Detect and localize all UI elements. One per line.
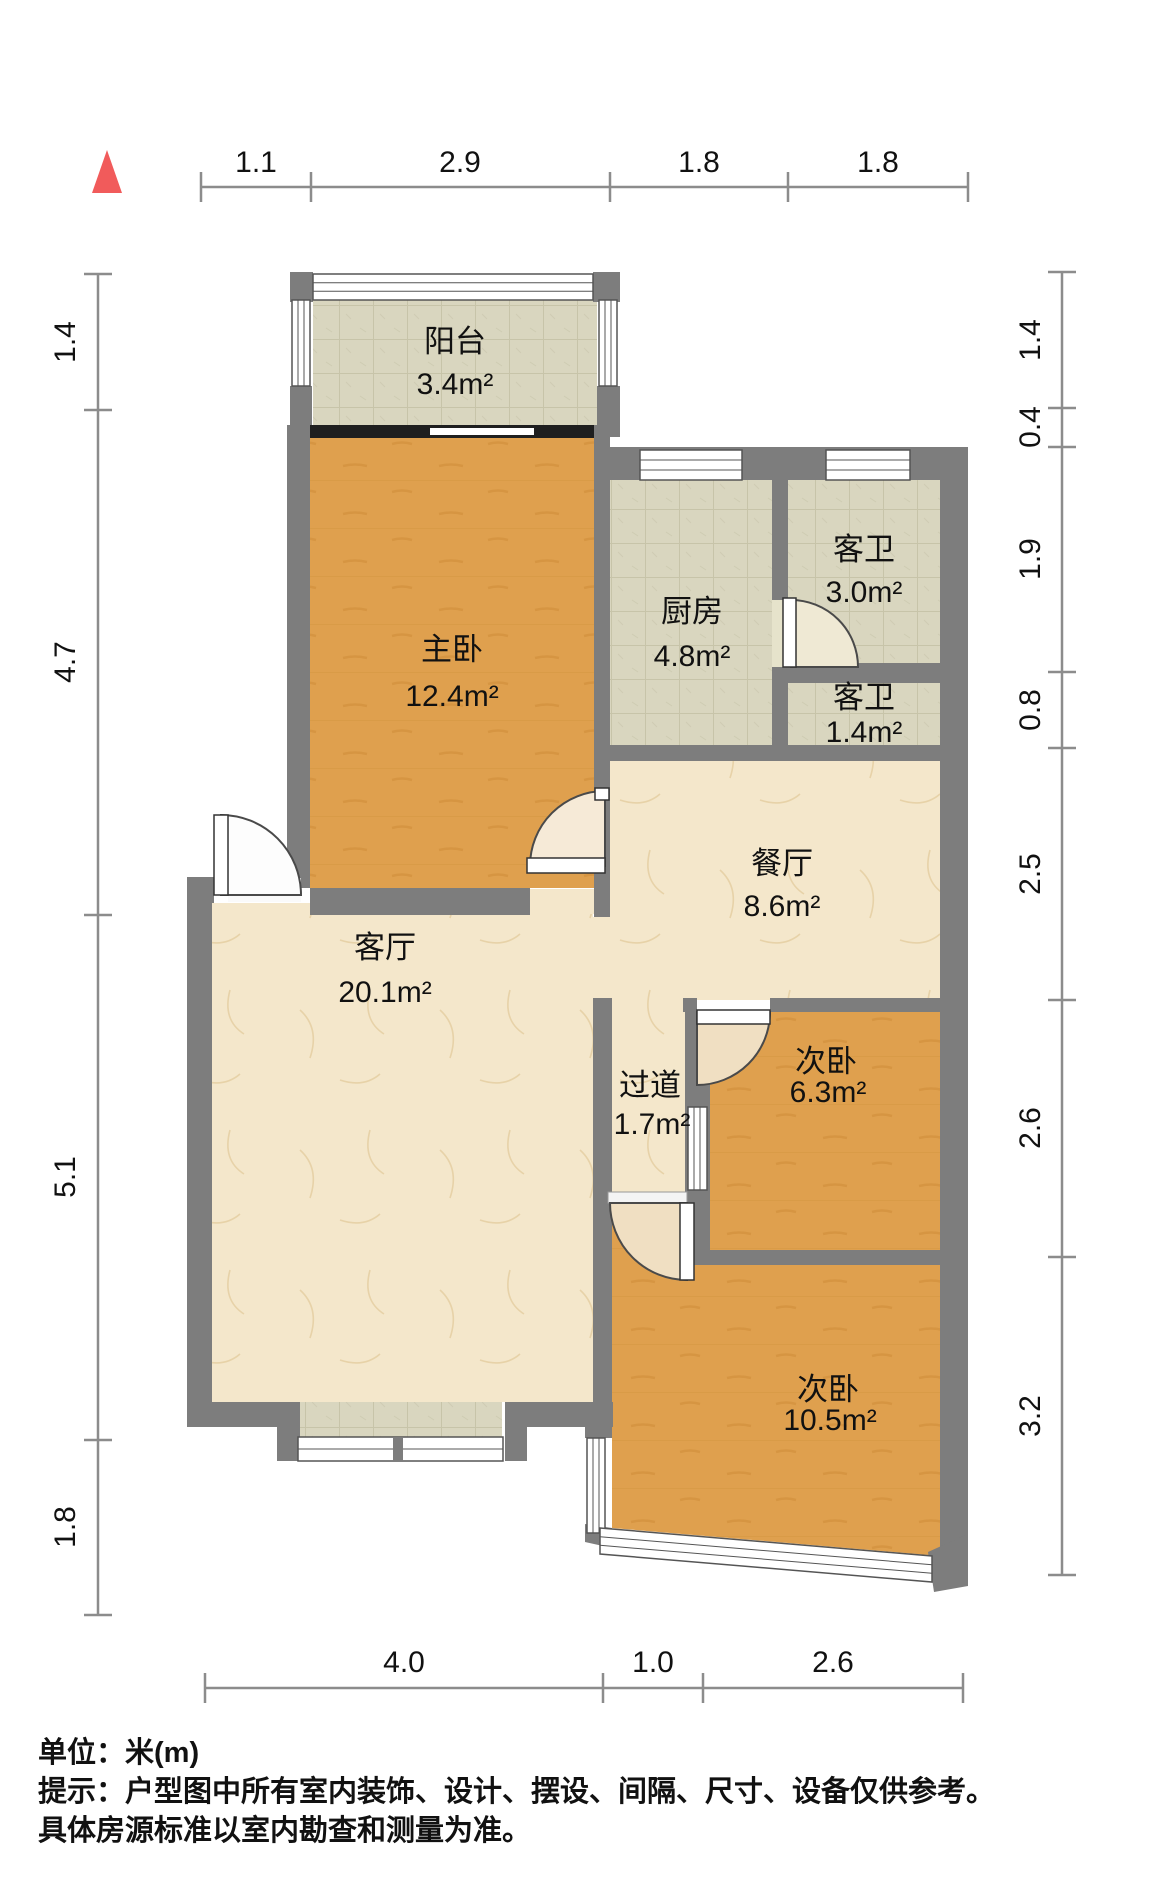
guest-bath-small-area: 1.4m² — [826, 716, 903, 749]
bedroom-3-left-wall-upper — [585, 1402, 612, 1438]
master-bedroom-area: 12.4m² — [405, 680, 498, 713]
floor-plan-svg: 阳台 3.4m² 主卧 12.4m² 厨房 4.8m² 客卫 3.0m² 客卫 … — [0, 0, 1165, 1874]
dim-top-1: 2.9 — [439, 146, 481, 179]
hallway-label: 过道 — [619, 1068, 681, 1103]
sliding-door — [310, 425, 594, 438]
dim-right-2: 1.9 — [1014, 538, 1047, 580]
living-room-label: 客厅 — [354, 930, 416, 965]
bath-window — [826, 450, 910, 480]
kitchen-area: 4.8m² — [654, 640, 731, 673]
dim-left-1: 4.7 — [49, 641, 82, 683]
living-room-area: 20.1m² — [338, 976, 431, 1009]
balcony-top-window — [313, 274, 593, 300]
dim-left-3: 1.8 — [49, 1506, 82, 1548]
dim-right-6: 3.2 — [1014, 1395, 1047, 1437]
living-bay-window — [298, 1437, 503, 1461]
floors — [212, 300, 940, 1556]
bedroom-2-top-wall — [770, 998, 940, 1012]
dim-right-0: 1.4 — [1014, 319, 1047, 361]
dim-bottom-0: 4.0 — [383, 1646, 425, 1679]
dim-top-3: 1.8 — [857, 146, 899, 179]
kitchen-bath-divider-upper — [772, 447, 788, 600]
right-outer-wall — [940, 447, 968, 1547]
footer-hint-line: 提示：户型图中所有室内装饰、设计、摆设、间隔、尺寸、设备仅供参考。 — [38, 1774, 995, 1808]
dim-right-3: 0.8 — [1014, 689, 1047, 731]
bottom-left-wall — [187, 1402, 292, 1427]
bedroom-3-area: 10.5m² — [783, 1404, 876, 1437]
bedroom-2-top-stub — [683, 998, 697, 1012]
master-bottom-wall — [310, 888, 530, 915]
dining-living-strip — [593, 917, 612, 1000]
balcony-left-window — [292, 300, 310, 386]
kitchen-label: 厨房 — [661, 594, 723, 629]
dim-right-4: 2.5 — [1014, 853, 1047, 895]
dining-room-label: 餐厅 — [751, 846, 813, 881]
bedroom-3-label: 次卧 — [797, 1372, 859, 1407]
balcony-label: 阳台 — [424, 324, 486, 359]
guest-bath-large-label: 客卫 — [833, 532, 895, 567]
dim-left-2: 5.1 — [49, 1156, 82, 1198]
balcony-right-window — [599, 300, 617, 386]
bay-window-floor — [300, 1402, 502, 1437]
floor-plan: 阳台 3.4m² 主卧 12.4m² 厨房 4.8m² 客卫 3.0m² 客卫 … — [0, 0, 1165, 1879]
bedroom-2-area: 6.3m² — [790, 1076, 867, 1109]
footer-unit-line: 单位：米(m) — [38, 1735, 199, 1769]
bedroom-2-label: 次卧 — [795, 1044, 857, 1079]
balcony-floor — [313, 300, 597, 425]
bay-right-wall — [505, 1402, 527, 1461]
dim-left-0: 1.4 — [49, 321, 82, 363]
bedroom-3-left-window — [587, 1438, 605, 1533]
guest-bath-large-area: 3.0m² — [826, 576, 903, 609]
footer-note-line: 具体房源标准以室内勘查和测量为准。 — [38, 1813, 531, 1847]
dim-bottom-1: 1.0 — [632, 1646, 674, 1679]
balcony-area: 3.4m² — [417, 368, 494, 401]
dim-top-0: 1.1 — [235, 146, 277, 179]
master-left-wall — [287, 425, 310, 888]
dim-bottom-2: 2.6 — [812, 1646, 854, 1679]
guest-bath-small-label: 客卫 — [833, 680, 895, 715]
hallway-area: 1.7m² — [614, 1108, 691, 1141]
left-outer-wall — [187, 877, 212, 1427]
dining-room-area: 8.6m² — [744, 890, 821, 923]
kitchen-window — [640, 450, 742, 480]
dim-top-2: 1.8 — [678, 146, 720, 179]
bay-left-wall — [277, 1402, 300, 1461]
bedroom-2-bottom-wall — [710, 1250, 940, 1265]
dim-right-5: 2.6 — [1014, 1107, 1047, 1149]
master-bedroom-label: 主卧 — [421, 632, 483, 667]
hallway-interior-window — [688, 1107, 707, 1190]
dim-right-1: 0.4 — [1014, 406, 1047, 448]
